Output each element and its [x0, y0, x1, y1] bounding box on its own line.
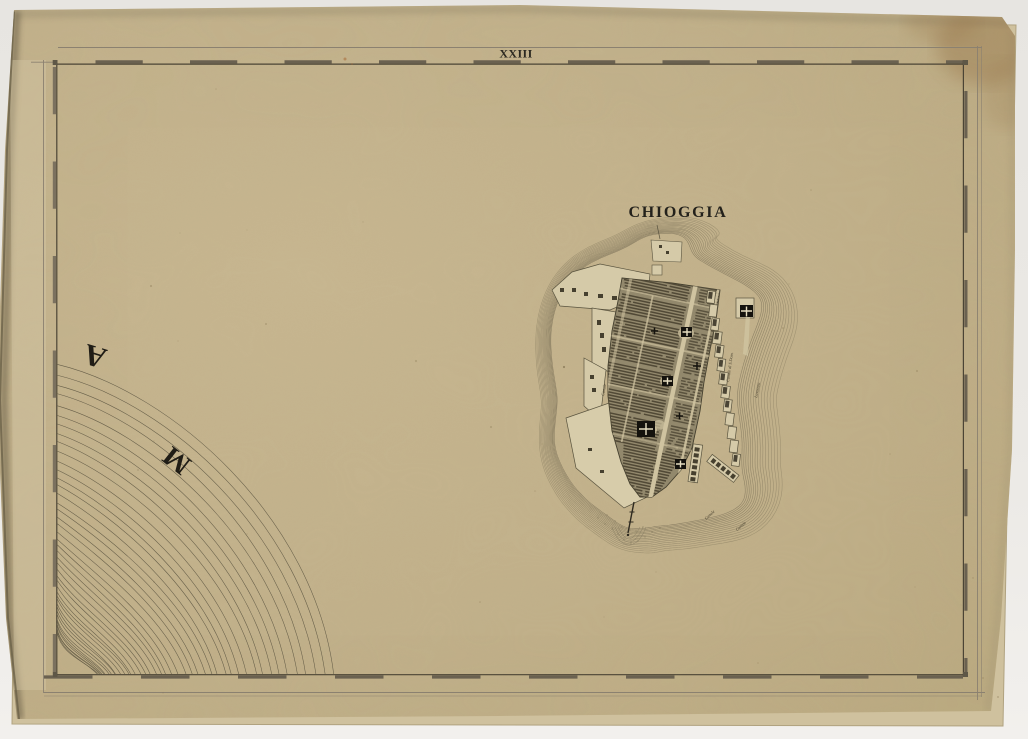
svg-text:CHIOGGIA: CHIOGGIA	[629, 204, 728, 221]
svg-text:XXIII: XXIII	[499, 47, 532, 61]
